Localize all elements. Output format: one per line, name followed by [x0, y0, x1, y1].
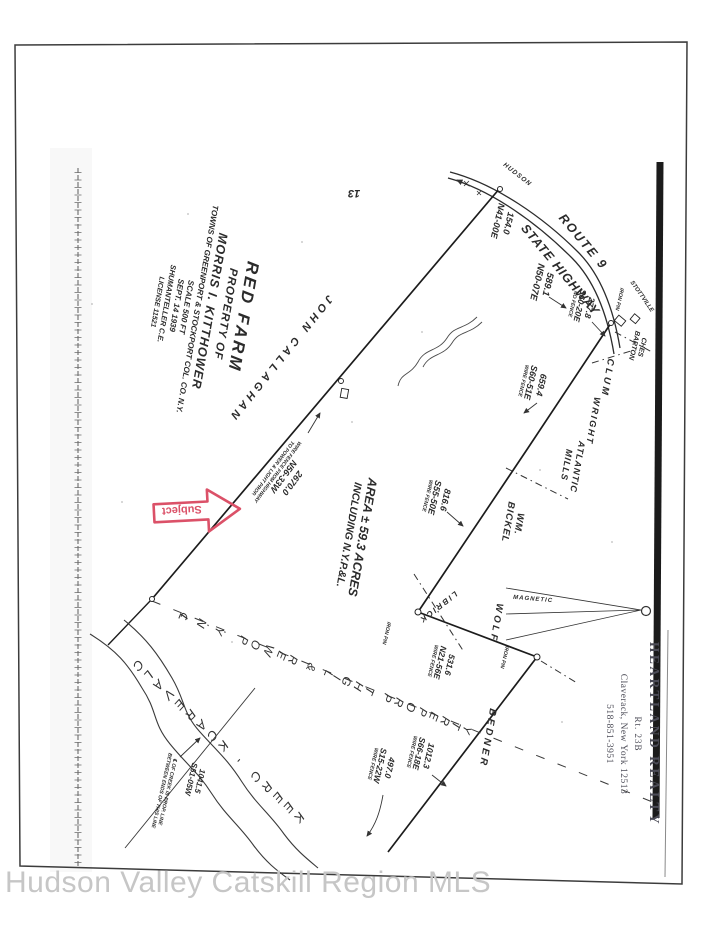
creek-bank-1 [90, 634, 290, 880]
realty-name: HEARTLAND REALTY [644, 599, 664, 869]
iron-pin-marker [150, 597, 155, 602]
building [339, 379, 344, 384]
realty-stamp: HEARTLAND REALTY Rt. 23B Claverack, New … [602, 599, 664, 869]
realty-address-1: Rt. 23B [630, 599, 644, 869]
subject-arrow-stamp: Subject [149, 484, 248, 541]
building [630, 314, 640, 324]
bedner-divider [541, 661, 577, 683]
creek-label: CLAVERACK - CREEK [126, 657, 308, 830]
survey-cross-marks [464, 181, 481, 195]
iron-pin-marker [498, 187, 503, 192]
iron-pin-marker [609, 321, 614, 326]
building [614, 315, 625, 326]
sheet-number: 13 [348, 186, 360, 199]
realty-address-2: Claverack, New York 12513 [616, 599, 630, 869]
building [340, 388, 348, 398]
sketch-driveway [398, 317, 482, 386]
realty-phone: 518-851-3951 [602, 599, 616, 869]
scan-edge-line [665, 630, 668, 877]
survey-map-scan: ℄ N.Y. POWER & LIGHT PROPERTY CLAVERACK … [0, 0, 720, 932]
iron-pin-marker [534, 654, 540, 660]
mls-watermark: Hudson Valley Catskill Region MLS [5, 866, 491, 900]
outer-border [15, 42, 687, 884]
boundary-west-corner [108, 599, 152, 645]
